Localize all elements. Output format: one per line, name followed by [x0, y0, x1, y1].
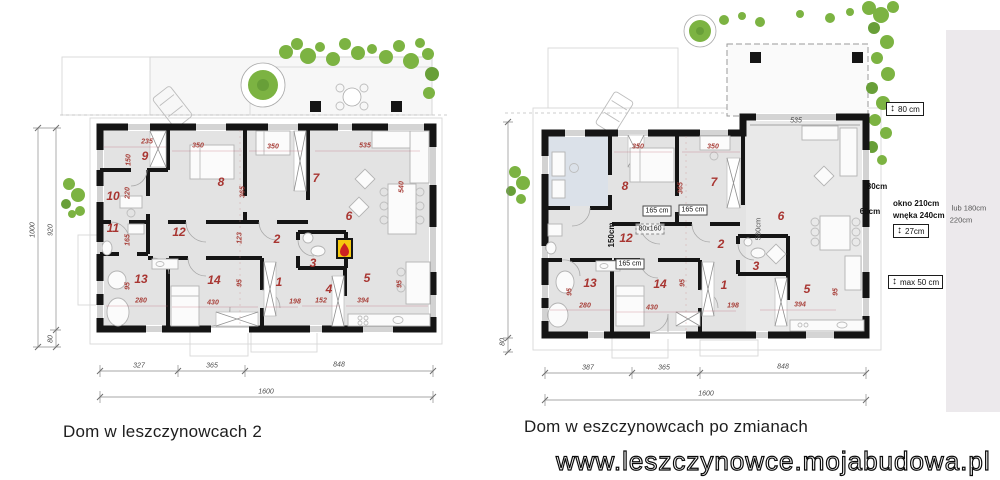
window-note-line1: okno 210cm — [893, 198, 945, 210]
tree-icon-right — [684, 15, 716, 47]
annotation-box-80cm: ↕ 80 cm — [886, 102, 924, 116]
vertical-arrow-icon: ↕ — [897, 226, 902, 236]
right-plan-caption: Dom w eszczynowcach po zmianach — [524, 417, 808, 437]
window-note: okno 210cm wnęka 240cm — [893, 198, 945, 222]
vertical-arrow-icon: ↕ — [892, 277, 897, 287]
annotation-box-label: 80 cm — [898, 105, 920, 114]
vertical-arrow-icon: ↕ — [890, 104, 895, 114]
left-building — [96, 101, 437, 333]
left-plan-caption: Dom w leszczynowcach 2 — [63, 422, 262, 442]
window-note-line2: wnęka 240cm — [893, 210, 945, 222]
annotation-box-label: 27cm — [905, 227, 925, 236]
floor-plan-graphics — [0, 0, 1000, 480]
annotation-box-27cm: ↕ 27cm — [893, 224, 929, 238]
fireplace-icon — [337, 239, 352, 258]
watermark: www.leszczynowce.mojabudowa.pl — [556, 446, 991, 477]
annotation-box-max50cm: ↕ max 50 cm — [888, 275, 943, 289]
annotation-box-label: max 50 cm — [900, 278, 939, 287]
tree-icon — [241, 63, 285, 107]
floor-plan-canvas: 9876101112231451314235350350535150220365… — [0, 0, 1000, 480]
